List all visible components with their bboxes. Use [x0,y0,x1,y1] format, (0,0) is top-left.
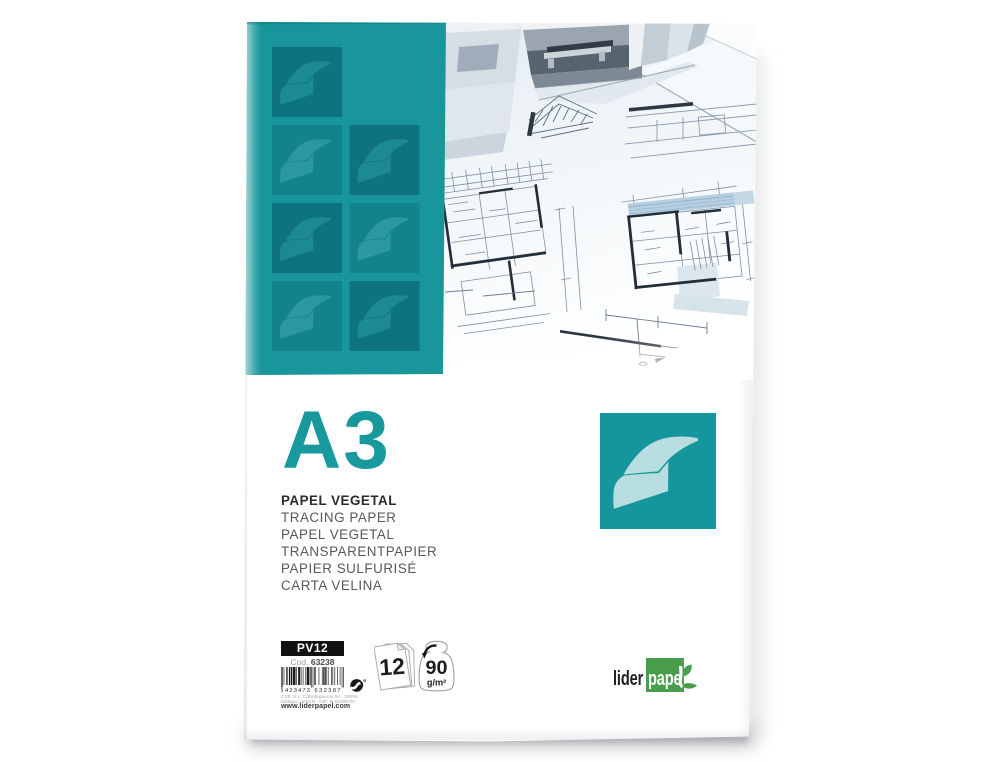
svg-text:423473: 423473 [285,688,310,693]
svg-text:632387: 632387 [315,688,341,693]
svg-text:90: 90 [426,657,448,679]
svg-text:8: 8 [281,688,283,693]
svg-text:g/m²: g/m² [427,677,446,687]
svg-text:12: 12 [378,653,405,681]
